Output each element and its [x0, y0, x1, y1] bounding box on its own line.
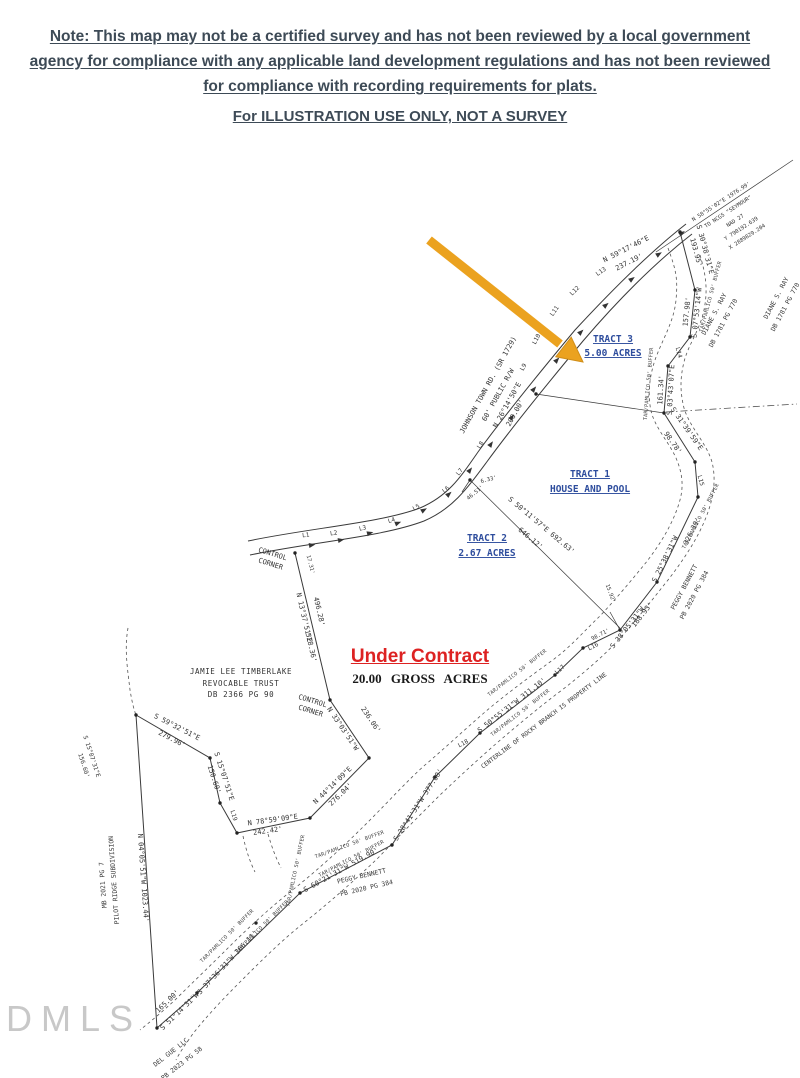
road-edge-south: [250, 234, 692, 555]
distance-n7859: 242.42': [253, 825, 283, 837]
tract2-acreage: 2.67 ACRES: [458, 548, 515, 559]
bearing-s2841: S 28°41'31"W 377.00': [392, 767, 445, 842]
property-tie-line: [666, 404, 797, 412]
dmls-watermark: DMLS: [6, 998, 142, 1040]
distance-s0753: 157.98': [681, 297, 692, 327]
segment-label-l8: L8: [476, 440, 486, 450]
distance-m4: 15.92': [604, 583, 616, 603]
segment-label-l4: L4: [387, 516, 396, 525]
segment-label-l2: L2: [330, 529, 339, 537]
distance-n1337-b: 528.36': [304, 632, 318, 663]
distance-s3139: 98.78': [662, 430, 683, 455]
buffer-label-9: TAR/PAMLICO 50' BUFFER: [234, 899, 290, 955]
buffer-line-north: [126, 628, 136, 715]
segment-label-l12: L12: [569, 284, 582, 297]
buffer-label-2: TAR/PAMLICO 50' BUFFER: [643, 347, 655, 421]
segment-label-l10: L10: [531, 333, 542, 346]
adjoiner-pilot-ridge-l1: PILOT RIDGE SUBDIVISION: [107, 836, 121, 925]
distance-s0343: 161.34': [656, 375, 666, 405]
gross-acres-label: 20.00 GROSS ACRES: [320, 671, 520, 687]
adjoiner-pilot-ridge-l2: MB 2021 PG 7: [97, 862, 108, 909]
distance-m3: 17.31': [305, 555, 316, 575]
tract3-name: TRACT 3: [593, 334, 633, 345]
segment-label-l9: L9: [519, 362, 529, 372]
adjoiner-timberlake-l3: DB 2366 PG 90: [208, 690, 275, 699]
segment-label-l16: L16: [587, 641, 600, 652]
bearing-n0405: N 04°05'51"W 1023.44': [136, 833, 150, 922]
segment-label-l7: L7: [455, 467, 465, 477]
distance-m1: 6.33': [480, 475, 497, 485]
segment-label-l11: L11: [549, 304, 561, 317]
segment-label-l18: L18: [457, 738, 470, 749]
segment-label-l13: L13: [595, 266, 608, 278]
distance-s5011: 646.12': [516, 526, 544, 551]
distance-n3303: 236.06': [359, 705, 382, 734]
adjoiner-timberlake-l2: REVOCABLE TRUST: [203, 679, 280, 688]
tract3-acreage: 5.00 ACRES: [584, 348, 641, 359]
buffer-label-3: TAR/PAMLICO 50' BUFFER: [681, 482, 721, 550]
tract1-desc: HOUSE AND POOL: [550, 484, 630, 495]
bearing-s2538: S 25°38'31"W: [651, 534, 681, 584]
plat-map: N 58°55'02"E 1976.99' TO NCGS "SEYMOUR" …: [0, 0, 800, 1078]
tract2-name: TRACT 2: [467, 533, 507, 544]
segment-label-l5: L5: [411, 503, 421, 513]
distance-n1337-a: 496.28': [312, 596, 326, 627]
bearing-n3303: N 33°03'51"W: [325, 706, 360, 753]
buffer-ticks: [243, 834, 281, 872]
bearing-s5114: S 51°14'31"W: [159, 991, 202, 1032]
tract1-name: TRACT 1: [570, 469, 610, 480]
segment-label-l3: L3: [358, 524, 367, 532]
under-contract-label: Under Contract: [330, 646, 510, 668]
segment-label-l1: L1: [302, 532, 310, 540]
distance-m2: 46.51': [466, 485, 485, 502]
plat-page: Note: This map may not be a certified su…: [0, 0, 800, 1078]
distance-m5: 98.71': [591, 628, 611, 642]
adjoiner-timberlake-l1: JAMIE LEE TIMBERLAKE: [190, 667, 292, 676]
